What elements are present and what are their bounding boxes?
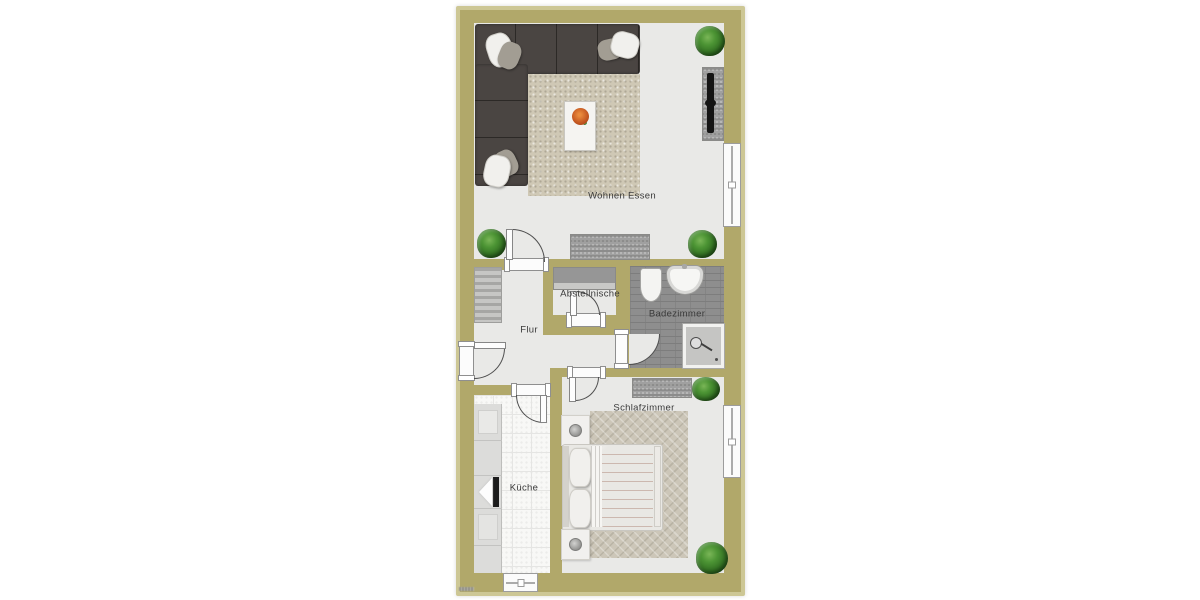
tv-stand-icon <box>705 99 716 107</box>
bed-footboard <box>654 446 661 527</box>
room-flur-strip <box>543 335 550 385</box>
door-leaf-living-flur <box>506 229 513 260</box>
window-bedroom-right <box>723 405 741 478</box>
plant-living-bottom-right-icon <box>688 230 717 258</box>
bed-duvet <box>602 446 653 527</box>
door-leaf-schlafzimmer <box>569 377 576 402</box>
label-flur: Flur <box>520 325 538 336</box>
kitchen-counter-divider-4 <box>474 545 502 546</box>
kitchen-lower-unit <box>478 514 498 540</box>
bedroom-dresser <box>632 378 692 398</box>
window-kitchen-bottom <box>503 573 538 592</box>
lowboard-sideboard <box>570 234 650 260</box>
label-schlafzimmer: Schlafzimmer <box>613 403 674 414</box>
window-living-right <box>723 143 741 227</box>
door-leaf-kueche <box>540 395 547 423</box>
shower-drain-icon <box>715 358 718 361</box>
plant-bedroom-top-right-icon <box>692 377 720 401</box>
lamp-bottom-icon <box>569 538 582 551</box>
kitchen-sink-unit <box>478 410 498 434</box>
label-abstellnische: Abstellnische <box>560 289 620 300</box>
toilet-icon <box>640 268 662 302</box>
sink-faucet-icon <box>682 264 687 269</box>
room-flur-extension <box>550 335 615 368</box>
kitchen-counter-divider-2 <box>474 475 502 476</box>
storage-shelf <box>553 267 616 290</box>
plant-living-bottom-left-icon <box>477 229 506 258</box>
bed-pillow-2 <box>569 489 591 528</box>
bed-pillow-1 <box>569 448 591 487</box>
entrance-door-leaf <box>474 342 506 349</box>
lamp-top-icon <box>569 424 582 437</box>
page-canvas: { "plan": { "rooms": [ {"id": "wohnen-es… <box>0 0 1200 600</box>
hallway-wardrobe <box>474 267 502 323</box>
kitchen-oven-icon <box>493 477 499 507</box>
label-kueche: Küche <box>510 483 538 494</box>
watermark-smudge <box>459 587 474 591</box>
label-badezimmer: Badezimmer <box>649 309 705 320</box>
label-wohnen-essen: Wohnen Essen <box>588 191 656 202</box>
kitchen-counter-divider-3 <box>474 508 502 509</box>
plant-bedroom-bottom-right-icon <box>696 542 728 574</box>
floorplan: Wohnen Essen Flur Abstellnische Badezimm… <box>0 0 1200 600</box>
flower-bouquet <box>572 108 589 125</box>
bed-sheet-fold <box>591 446 602 527</box>
entrance-door-threshold <box>459 342 474 380</box>
kitchen-oven-door-icon <box>479 478 492 506</box>
kitchen-counter-divider-1 <box>474 440 502 441</box>
plant-living-top-right-icon <box>695 26 725 56</box>
door-threshold-badezimmer <box>615 330 628 368</box>
